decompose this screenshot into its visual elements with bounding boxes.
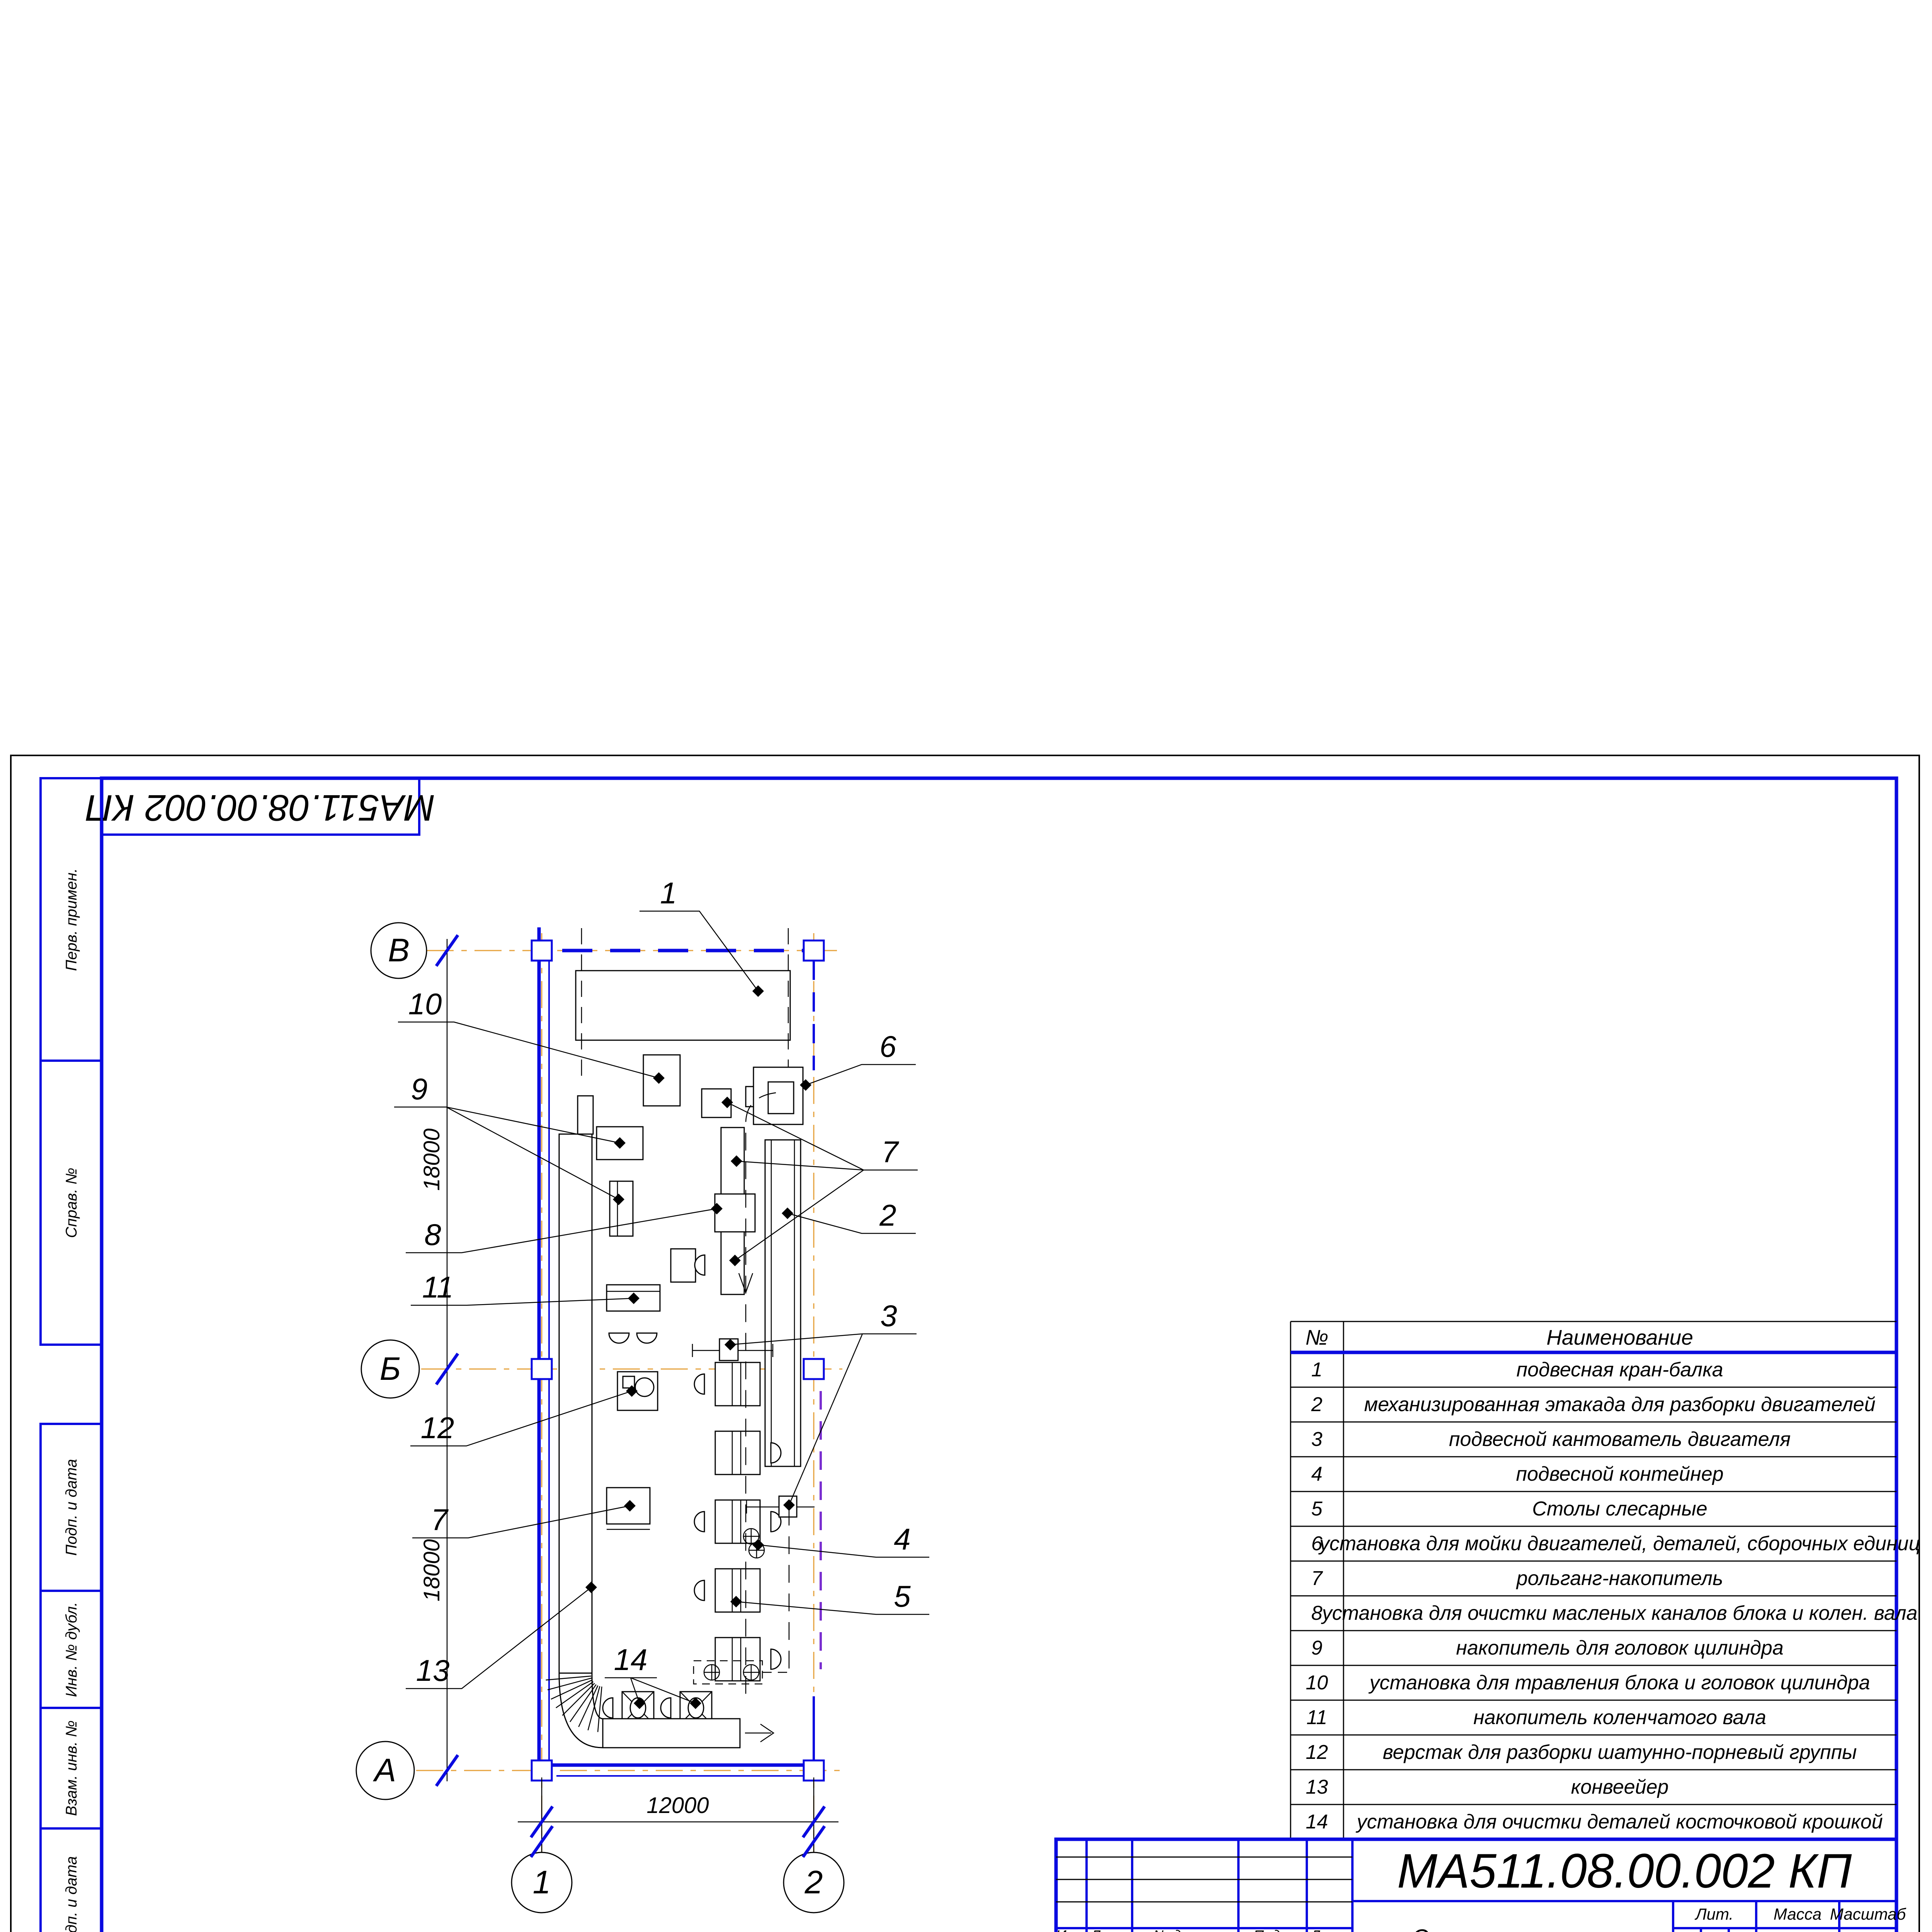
head-rack-b xyxy=(610,1181,633,1236)
disassembly-stand xyxy=(765,1140,801,1466)
spec-row-no: 4 xyxy=(1311,1463,1323,1485)
drawing-title-line1: Схема планировки xyxy=(1412,1925,1614,1932)
margin-label-podp-data-2: Подп. и дата xyxy=(63,1856,80,1932)
cleaning-unit-8 xyxy=(715,1194,755,1232)
spec-row-no: 7 xyxy=(1311,1567,1323,1590)
callout-6: 6 xyxy=(879,1029,896,1063)
col-doc-no: № докум. xyxy=(1153,1928,1218,1932)
axis-letter-a: А xyxy=(372,1752,396,1788)
callout-5: 5 xyxy=(894,1579,911,1613)
col-date: Дата xyxy=(1309,1928,1349,1932)
col-izm: Изм. xyxy=(1056,1928,1087,1932)
dim-18000-bottom: 18000 xyxy=(419,1539,444,1601)
callout-9: 9 xyxy=(411,1072,427,1106)
callout-4: 4 xyxy=(894,1522,910,1556)
spec-row-no: 10 xyxy=(1306,1672,1328,1694)
spec-row-no: 1 xyxy=(1311,1359,1323,1381)
small-stand xyxy=(671,1249,696,1282)
spec-row-no: 5 xyxy=(1311,1498,1323,1520)
label-mass: Масса xyxy=(1774,1905,1821,1923)
margin-label-inv-dubl: Инв. № дубл. xyxy=(63,1602,80,1697)
spec-row-name: конвеейер xyxy=(1571,1776,1669,1798)
spec-row-name: рольганг-накопитель xyxy=(1516,1567,1723,1590)
callout-14: 14 xyxy=(614,1643,648,1677)
spec-row-name: установка для очистки масленых каналов б… xyxy=(1321,1602,1918,1624)
drawing-sheet-canvas: МА511.08.00.002 КП Перв. примен. Справ. … xyxy=(0,0,1932,1932)
dim-18000-top: 18000 xyxy=(419,1128,444,1190)
spec-row-no: 11 xyxy=(1306,1706,1327,1729)
margin-label-sprav-no: Справ. № xyxy=(63,1168,80,1238)
spec-row-no: 13 xyxy=(1306,1776,1328,1798)
spec-row-no: 3 xyxy=(1311,1428,1323,1451)
gost-drawing: МА511.08.00.002 КП Перв. примен. Справ. … xyxy=(0,0,1932,1932)
spec-row-name: механизированная этакада для разборки дв… xyxy=(1364,1393,1875,1416)
callout-1: 1 xyxy=(660,876,677,910)
spec-row-no: 2 xyxy=(1311,1393,1323,1416)
spec-row-name: установка для травления блока и головок … xyxy=(1368,1672,1870,1694)
callout-3: 3 xyxy=(880,1299,897,1333)
spec-row-name: установка для очистки деталей косточково… xyxy=(1355,1811,1883,1833)
spec-row-no: 12 xyxy=(1306,1741,1328,1764)
spec-row-name: подвесной кантователь двигателя xyxy=(1449,1428,1791,1451)
spec-row-name: накопитель для головок цилиндра xyxy=(1456,1637,1784,1659)
axis-letter-v: В xyxy=(388,932,410,968)
spec-row-name: установка для мойки двигателей, деталей,… xyxy=(1318,1532,1920,1555)
axis-letter-b: Б xyxy=(380,1350,401,1387)
spec-row-no: 9 xyxy=(1311,1637,1323,1659)
label-scale: Масштаб xyxy=(1830,1905,1906,1923)
margin-label-perv-primen: Перв. примен. xyxy=(63,868,80,971)
crane-beam xyxy=(576,971,790,1040)
spec-col-name: Наименование xyxy=(1546,1325,1693,1349)
callout-7-right: 7 xyxy=(881,1135,899,1169)
label-lit: Лит. xyxy=(1694,1905,1733,1923)
spec-row-no: 8 xyxy=(1311,1602,1323,1624)
dim-12000: 12000 xyxy=(646,1793,709,1818)
spec-row-name: верстак для разборки шатунно-порневый гр… xyxy=(1383,1741,1857,1764)
margin-label-podp-data-1: Подп. и дата xyxy=(63,1459,80,1556)
spec-row-name: Столы слесарные xyxy=(1532,1498,1707,1520)
title-doc-number: МА511.08.00.002 КП xyxy=(1397,1844,1852,1898)
margin-label-vzam-inv: Взам. инв. № xyxy=(63,1720,80,1816)
col-podp: Подп. xyxy=(1253,1928,1292,1932)
spec-row-name: подвесной контейнер xyxy=(1516,1463,1723,1485)
callout-11: 11 xyxy=(422,1270,454,1304)
col-list: Лист xyxy=(1089,1928,1128,1932)
spec-row-name: подвесная кран-балка xyxy=(1516,1359,1723,1381)
spec-col-no: № xyxy=(1305,1325,1328,1349)
stamp-doc-number: МА511.08.00.002 КП xyxy=(86,787,435,828)
callout-2: 2 xyxy=(879,1198,896,1232)
axis-number-2: 2 xyxy=(804,1864,823,1900)
callout-13: 13 xyxy=(416,1653,450,1687)
callout-7-left: 7 xyxy=(431,1503,449,1537)
axis-number-1: 1 xyxy=(533,1864,551,1900)
callout-12: 12 xyxy=(421,1411,454,1445)
spec-row-no: 14 xyxy=(1306,1811,1328,1833)
callout-10: 10 xyxy=(408,987,442,1021)
spec-row-name: накопитель коленчатого вала xyxy=(1473,1706,1766,1729)
callout-8: 8 xyxy=(424,1218,441,1252)
